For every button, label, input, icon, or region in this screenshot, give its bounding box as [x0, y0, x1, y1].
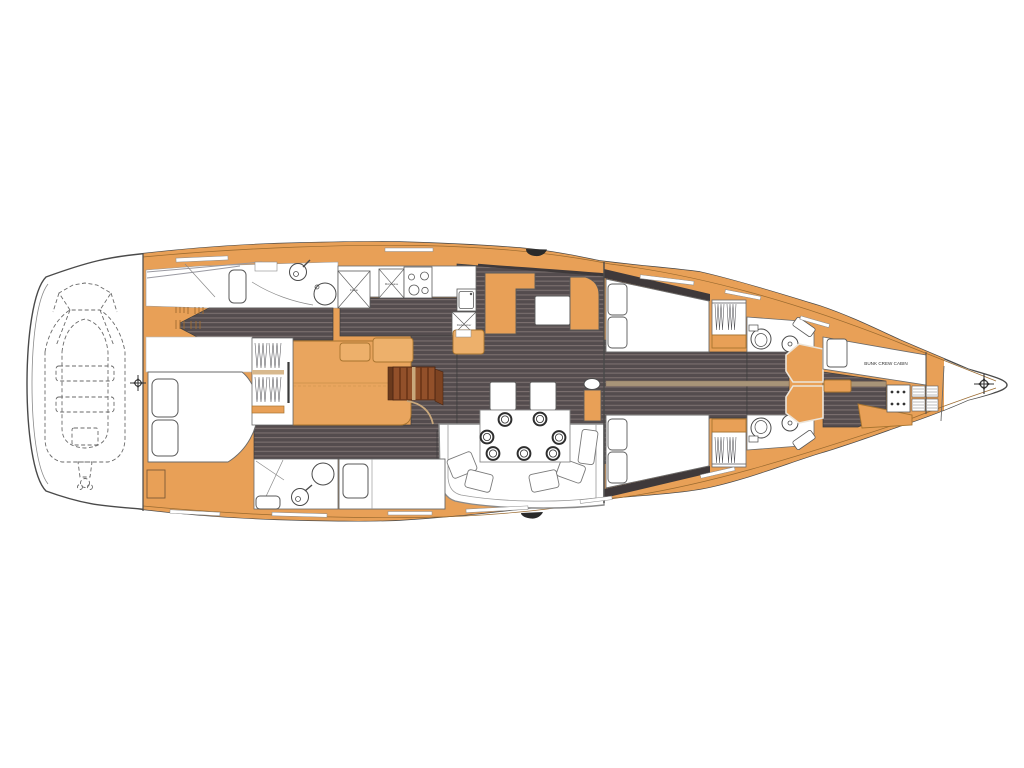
svg-text:Fridge: Fridge [350, 288, 358, 292]
svg-text:Dishwasher: Dishwasher [457, 323, 472, 327]
svg-text:BUNK CREW CABIN: BUNK CREW CABIN [864, 361, 907, 366]
svg-text:Microwave: Microwave [385, 282, 399, 286]
